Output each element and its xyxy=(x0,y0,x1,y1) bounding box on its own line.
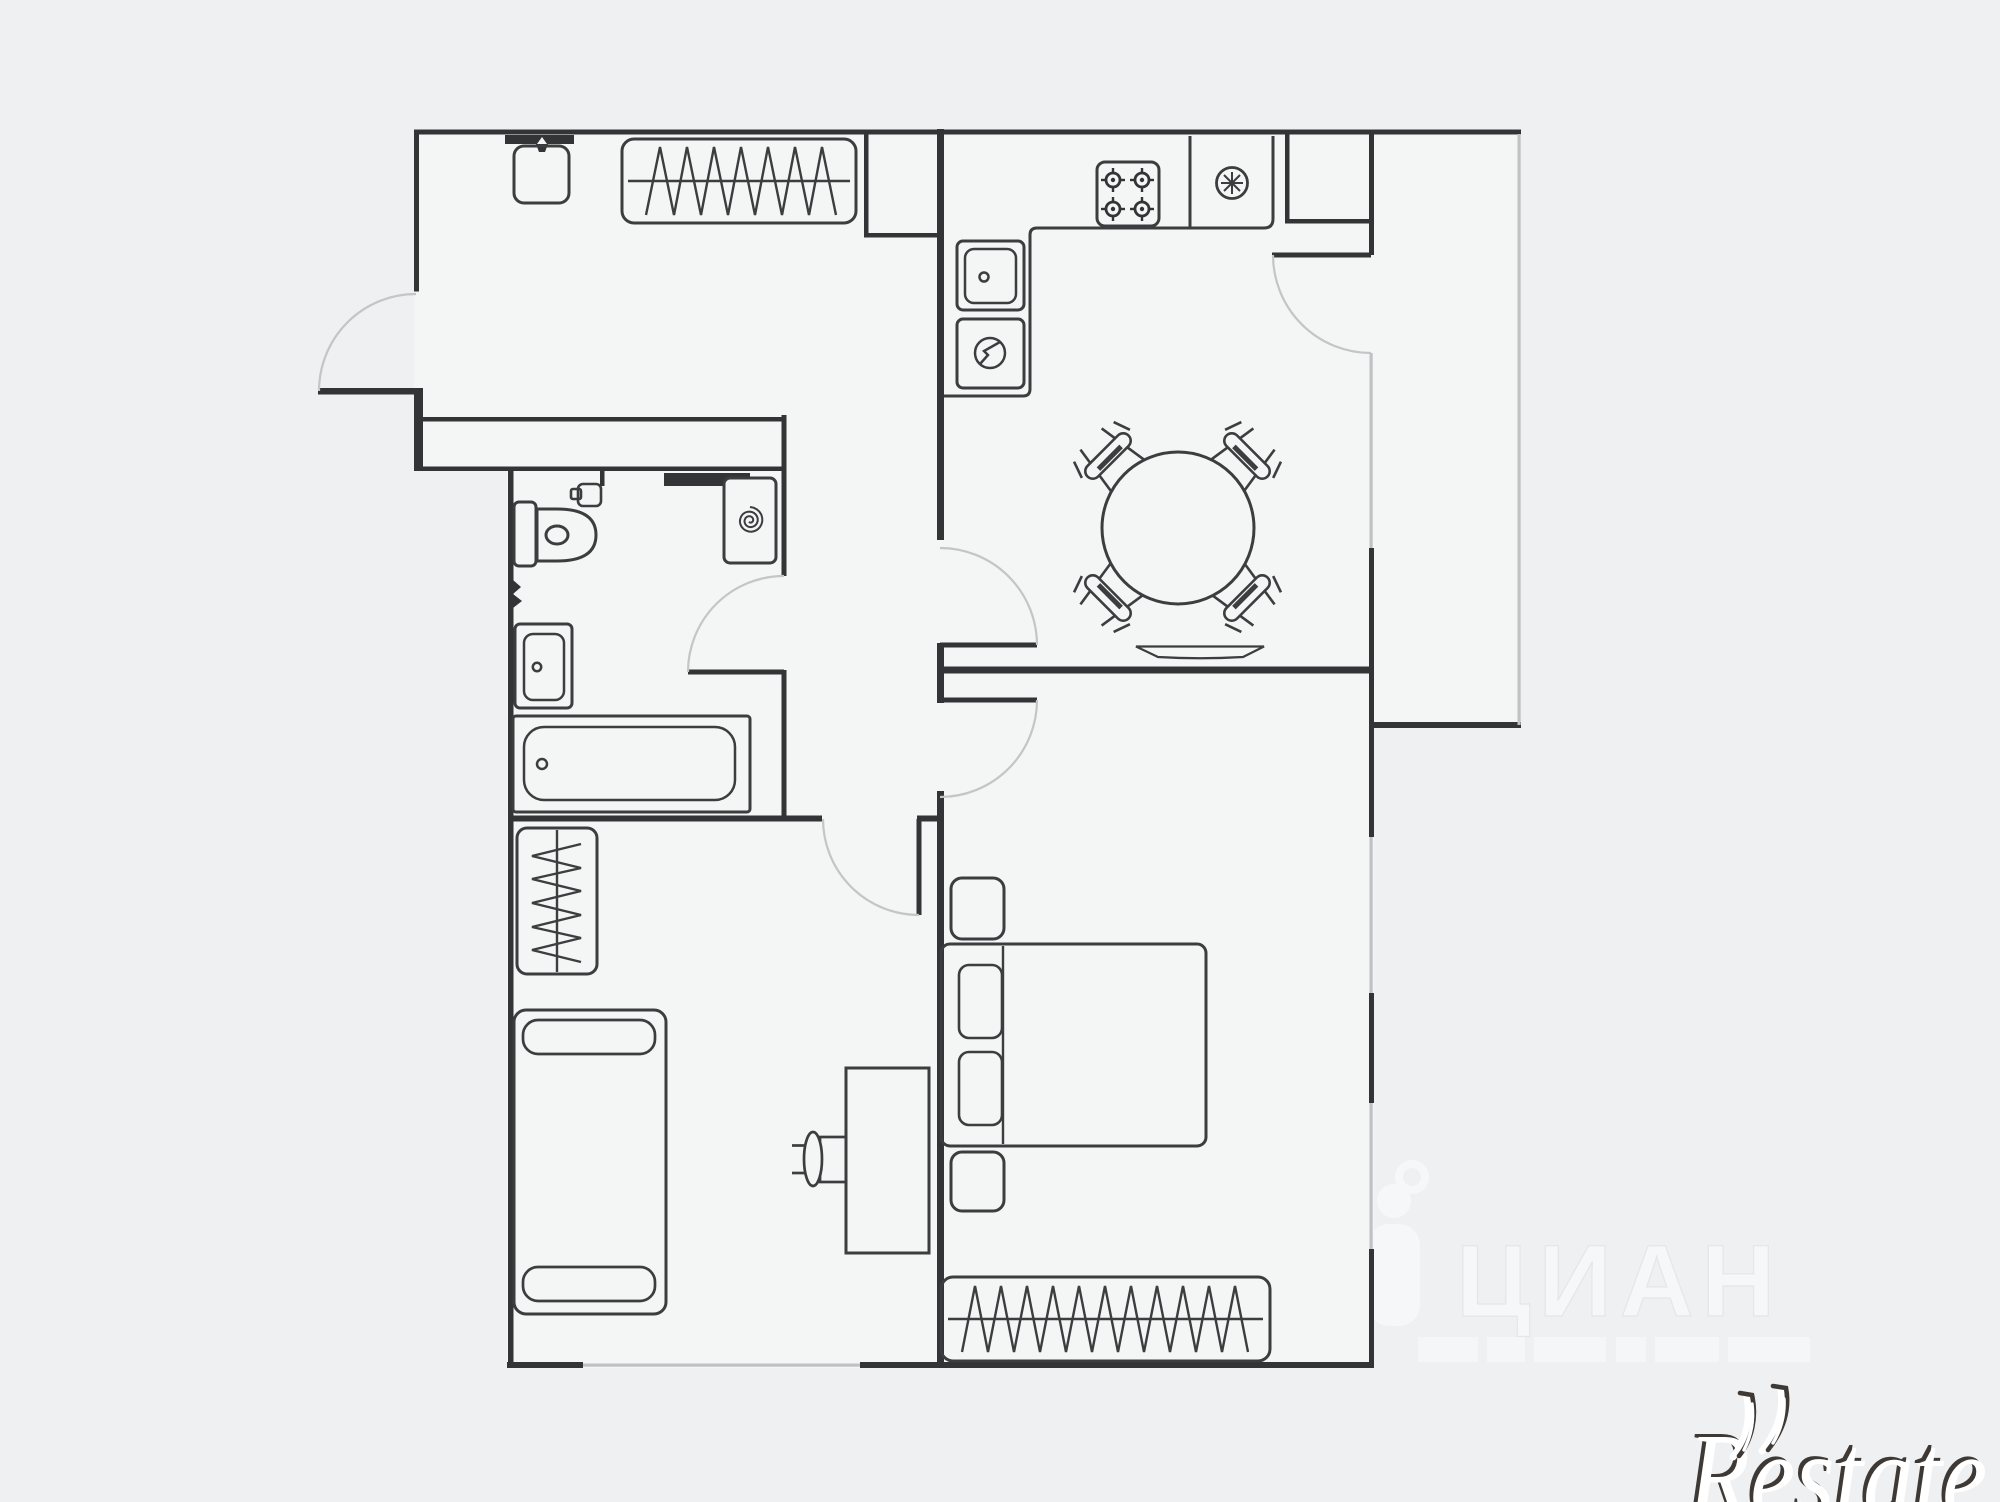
svg-text:ЦИАН: ЦИАН xyxy=(1456,1224,1783,1338)
